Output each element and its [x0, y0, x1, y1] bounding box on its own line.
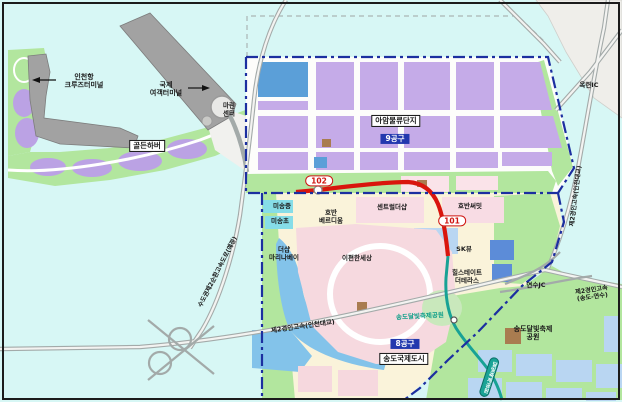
- label-songdo-international-city: 송도국제도시: [379, 353, 428, 365]
- label-intl-passenger-terminal: 국제 여객터미널: [150, 81, 182, 98]
- label-marine-center: 마린 센터: [223, 102, 235, 117]
- badge-district-8: 8공구: [390, 339, 419, 349]
- badge-station-102: 102: [305, 175, 333, 186]
- label-aam-logistics-complex: 아암물류단지: [371, 115, 420, 127]
- label-central-thesharp: 센트럴더샵: [377, 204, 407, 212]
- badge-district-9: 9공구: [380, 134, 409, 144]
- label-hillstate-the-terrace: 힐스테이트 더테라스: [452, 269, 482, 284]
- label-misong-middle-school: 미송중: [273, 203, 291, 211]
- label-hoban-summit: 호반써밋: [458, 203, 482, 211]
- label-golden-harbor: 골든하버: [129, 140, 165, 152]
- songdo-area-map: 인천항 크루즈터미널국제 여객터미널마린 센터골든하버아암물류단지9공구1021…: [0, 0, 622, 402]
- map-canvas: [0, 0, 622, 402]
- label-songdo-moonlight-festival-park: 송도달빛축제 공원: [514, 325, 553, 342]
- label-misong-elementary-school: 미송초: [271, 218, 289, 226]
- label-hoban-verdium: 호반 베르디움: [319, 209, 343, 224]
- label-incheon-cruise-terminal: 인천항 크루즈터미널: [65, 73, 104, 90]
- label-thesharp-marina-bay: 더샵 마리나베이: [269, 246, 299, 261]
- label-sk-view: SK뷰: [456, 246, 472, 254]
- badge-station-101: 101: [438, 215, 466, 226]
- label-okryeon-ic: 옥련IC: [579, 82, 598, 90]
- label-epyeonhan-sesang: 이편한세상: [342, 255, 372, 263]
- label-yeonsu-jc: 연수JC: [526, 282, 545, 290]
